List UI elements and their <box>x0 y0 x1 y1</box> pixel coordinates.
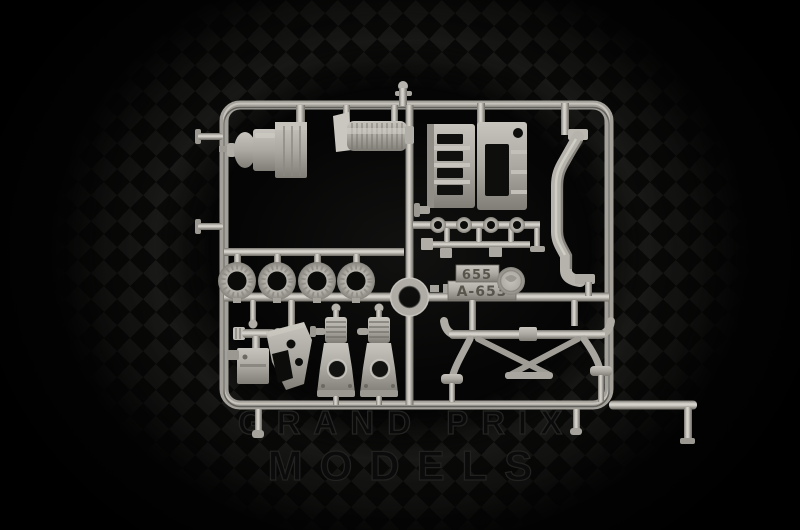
trumpet <box>483 217 499 233</box>
side-wing-blade <box>556 103 595 296</box>
maker-medallion <box>497 267 525 295</box>
pedal-bracket-plate <box>266 300 312 390</box>
center-ring <box>391 278 429 316</box>
product-photo: GRAND PRIX MODELS <box>0 0 800 530</box>
sprue-photo: 655 A-653 <box>0 0 800 530</box>
rear-subframe <box>441 300 612 402</box>
suspension-tower <box>357 304 398 406</box>
trumpet <box>430 217 446 233</box>
tag-line1: 655 <box>462 268 492 283</box>
suspension-tower <box>310 304 355 406</box>
intake-trumpet-row <box>413 217 545 258</box>
gearbox-assembly <box>219 105 307 178</box>
trumpet <box>456 217 472 233</box>
oil-cooler <box>333 105 414 152</box>
engine-side-plates <box>414 103 527 217</box>
trumpet <box>509 217 525 233</box>
